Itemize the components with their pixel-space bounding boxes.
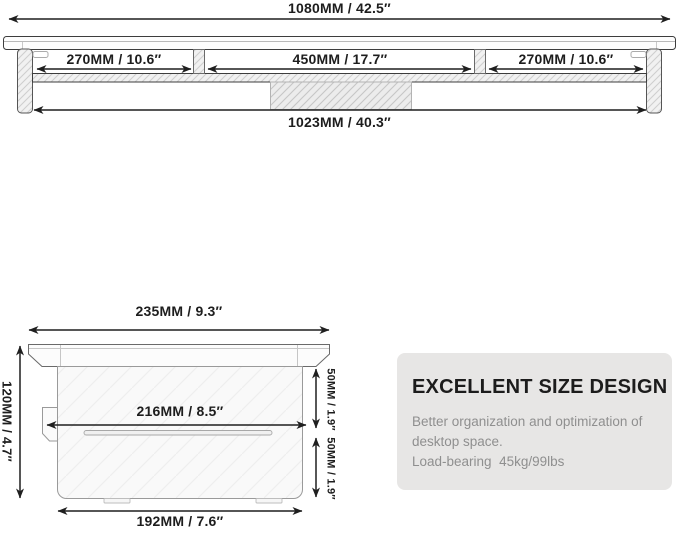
front-right-leg bbox=[647, 49, 662, 113]
info-load-bearing: Load-bearing 45kg/99lbs bbox=[412, 452, 658, 472]
side-top-board bbox=[29, 345, 330, 367]
side-shelf-depth-label: 216MM / 8.5″ bbox=[72, 404, 288, 419]
side-lower-gap-label: 50MM / 1.9″ bbox=[323, 426, 338, 512]
front-divider-left bbox=[194, 50, 205, 74]
front-overall-width-label: 1080MM / 42.5″ bbox=[0, 1, 679, 16]
side-height-label: 120MM / 4.7″ bbox=[0, 368, 15, 476]
front-middle-section-label: 450MM / 17.7″ bbox=[208, 52, 472, 67]
product-dimension-image: 1080MM / 42.5″ 270MM / 10.6″ 450MM / 17.… bbox=[0, 0, 679, 533]
front-right-section-label: 270MM / 10.6″ bbox=[489, 52, 643, 67]
info-title: EXCELLENT SIZE DESIGN bbox=[412, 376, 658, 399]
front-divider-right bbox=[475, 50, 486, 74]
front-center-block bbox=[271, 82, 412, 110]
info-box: EXCELLENT SIZE DESIGN Better organizatio… bbox=[397, 353, 672, 490]
side-foot-right bbox=[256, 499, 282, 504]
info-description: Better organization and optimization of … bbox=[412, 412, 658, 452]
side-foot-left bbox=[104, 499, 130, 504]
front-left-section-label: 270MM / 10.6″ bbox=[36, 52, 192, 67]
front-lower-shelf bbox=[33, 74, 647, 83]
side-groove bbox=[84, 431, 272, 436]
front-top-board bbox=[4, 37, 676, 50]
front-inner-width-label: 1023MM / 40.3″ bbox=[0, 115, 679, 130]
front-left-leg bbox=[18, 49, 33, 113]
side-top-depth-label: 235MM / 9.3″ bbox=[28, 304, 330, 319]
side-base-depth-label: 192MM / 7.6″ bbox=[58, 514, 302, 529]
